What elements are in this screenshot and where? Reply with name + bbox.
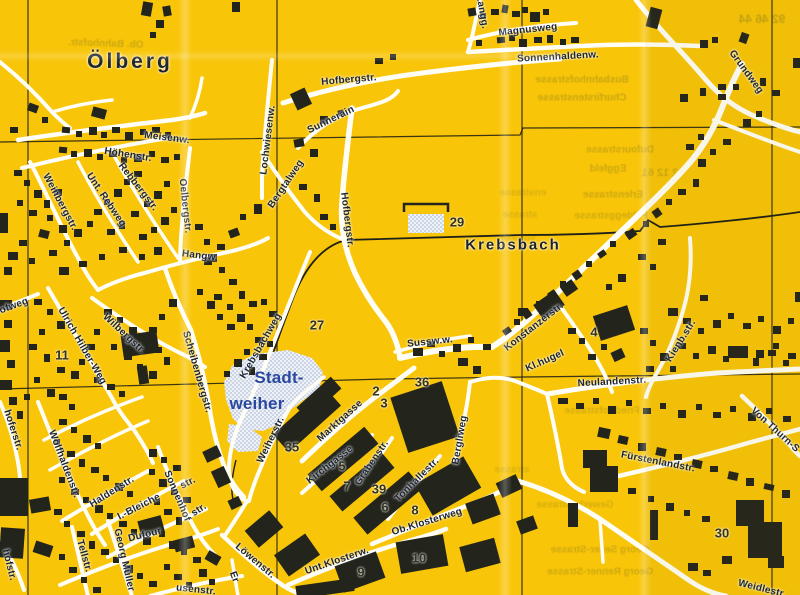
street-label: Fürstenlandstr. xyxy=(620,449,696,474)
street-label: Oelbergstr. xyxy=(177,178,194,234)
street-label: Grundweg xyxy=(727,48,766,96)
street-label: Löwenstr. xyxy=(233,541,277,581)
street-label: Magnusweg xyxy=(498,21,558,38)
street-label: str. xyxy=(189,501,208,519)
street-label: Er xyxy=(227,570,241,584)
street-label: Bergliweg xyxy=(450,415,469,466)
poi-number: 9 xyxy=(357,565,364,580)
street-label: Weidlestr. xyxy=(737,578,787,595)
street-label: ofweg xyxy=(0,296,30,317)
street-label: Bergtalweg xyxy=(266,158,306,210)
poi-number: 3 xyxy=(380,396,387,411)
street-label: Hangw. xyxy=(181,248,218,263)
poi-number: 10 xyxy=(412,551,426,566)
street-label: Kl.hugel xyxy=(524,348,566,375)
street-label: Sussw.w. xyxy=(407,334,454,350)
street-label: Tellstr. xyxy=(74,539,94,574)
street-label: Meisenw. xyxy=(144,130,191,146)
poi-number: 36 xyxy=(415,375,429,390)
poi-number: 5 xyxy=(338,459,345,474)
street-label: Ölberg xyxy=(87,50,173,74)
poi-number: 39 xyxy=(372,482,386,497)
poi-number: 6 xyxy=(381,500,388,515)
street-label: usenstr. xyxy=(176,582,217,595)
street-label: Wilbergstr. xyxy=(101,312,148,357)
street-label: str. xyxy=(178,475,197,492)
street-label: Von Thurn-S xyxy=(748,405,800,454)
poi-number: 4 xyxy=(590,325,597,340)
street-label: Sunnerain xyxy=(306,104,356,136)
street-label: Kienb.str. xyxy=(664,318,699,364)
street-label: Sonnenhaldenw. xyxy=(517,49,599,64)
poi-number: 7 xyxy=(343,479,350,494)
poi-number: 11 xyxy=(55,348,69,363)
street-label: Lochwiesenw. xyxy=(258,105,277,176)
street-label: Hofbergstr. xyxy=(338,192,356,248)
street-label: Langg. xyxy=(474,0,491,30)
street-label: Unt. Rebweg xyxy=(84,171,128,229)
street-label: Grabenstr. xyxy=(353,438,391,487)
street-label: Hofbergstr. xyxy=(321,72,377,88)
poi-number: 8 xyxy=(411,503,418,518)
street-label: Tonhallestr. xyxy=(393,456,442,505)
street-label: Rebbergstr. xyxy=(116,161,160,213)
street-label: Höhenstr. xyxy=(103,146,152,164)
street-label: Dufour xyxy=(127,526,163,545)
street-label: Scheibenbergstr. xyxy=(180,330,214,414)
street-label: Wolfhaldenstr. xyxy=(46,429,82,500)
street-label: Weiherstr. xyxy=(255,415,287,465)
street-label: Krebsbach xyxy=(465,237,561,254)
map-label-layer: ÖlbergMeisenw.Höhenstr.Weinbergstr.Unt. … xyxy=(0,0,800,595)
poi-number: 27 xyxy=(310,318,324,333)
poi-number: 29 xyxy=(450,215,464,230)
street-label: Konstanzerstr. xyxy=(502,300,566,353)
street-label: Marktgasse xyxy=(315,398,365,444)
street-label: weiher xyxy=(229,394,284,414)
poi-number: 2 xyxy=(372,384,379,399)
street-label: Ob.Klosterweg xyxy=(390,506,463,538)
street-label: Stadt- xyxy=(254,368,303,388)
street-label: hoferstr. xyxy=(1,408,24,451)
poi-number: 30 xyxy=(715,526,729,541)
poi-number: 35 xyxy=(285,440,299,455)
street-label: hofstr. xyxy=(0,548,18,582)
street-label: I.-Bleiche xyxy=(116,492,162,523)
street-label: Neulandenstr. xyxy=(577,375,646,390)
city-map: Ob. Bahnhofstr.92 46 44Busbahnhofstrasse… xyxy=(0,0,800,595)
street-label: Weinbergstr. xyxy=(40,172,79,233)
